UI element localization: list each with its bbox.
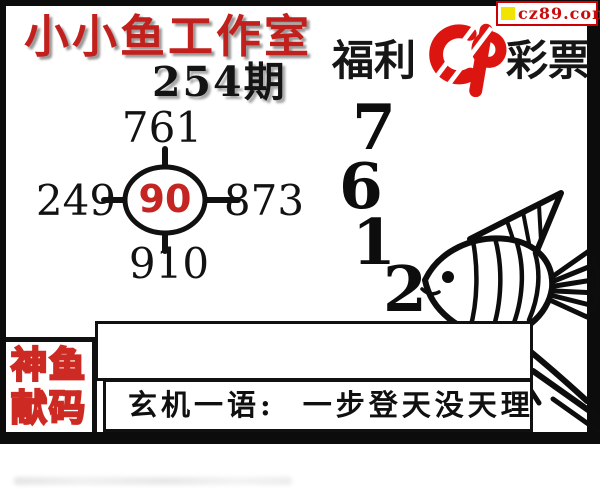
brand-suffix: 彩票: [506, 40, 590, 82]
hint-label: 玄机一语:: [128, 391, 275, 420]
yellow-square-icon: [501, 7, 515, 20]
note-box: [95, 321, 533, 381]
diagram-number-left: 249: [26, 177, 126, 225]
hint-phrase: 一步登天没天理: [303, 391, 534, 420]
welfare-lottery-brand: 福利 彩票: [324, 24, 598, 98]
issue-number: 254期: [152, 62, 287, 103]
diagram-number-top: 761: [112, 104, 212, 152]
diagram-number-center: 90: [129, 180, 201, 218]
stamp-line-2: 献码: [11, 387, 87, 430]
footer-smudge: [14, 477, 292, 485]
brand-prefix: 福利: [332, 40, 416, 82]
site-badge-label: cz89.com: [518, 4, 600, 23]
diagram-number-bottom: 910: [119, 240, 219, 288]
big-digit-2: 2: [383, 258, 427, 321]
stamp-box: 神鱼 献码: [6, 337, 97, 432]
stamp-line-1: 神鱼: [11, 344, 87, 387]
diagram-number-right: 873: [214, 177, 314, 225]
site-badge[interactable]: cz89.com: [496, 1, 598, 26]
welfare-lottery-logo-icon: [413, 17, 509, 97]
hint-box: 玄机一语: 一步登天没天理: [103, 379, 533, 432]
studio-title: 小小鱼工作室: [24, 14, 312, 59]
